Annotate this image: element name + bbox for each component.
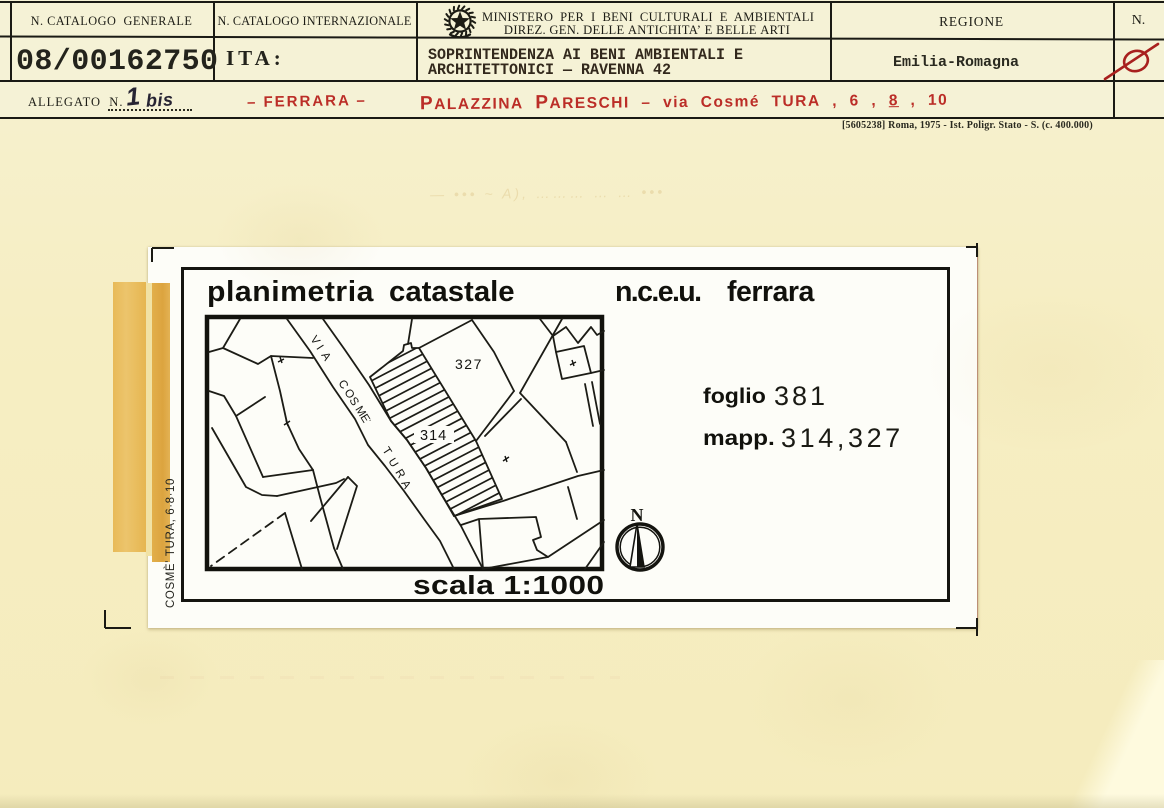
svg-text:ferrara: ferrara (727, 276, 815, 308)
svg-text:n.c.e.u.: n.c.e.u. (615, 276, 700, 308)
svg-text:catastale: catastale (389, 276, 515, 308)
svg-text:mapp.: mapp. (703, 426, 775, 450)
svg-text:planimetria: planimetria (207, 276, 374, 308)
svg-text:COSMÈʼ TURA, 6·8·10: COSMÈʼ TURA, 6·8·10 (164, 478, 177, 608)
svg-text:N: N (631, 505, 644, 525)
svg-text:381: 381 (774, 381, 828, 411)
svg-text:314: 314 (420, 428, 447, 444)
svg-text:scala 1:1000: scala 1:1000 (413, 572, 604, 601)
svg-text:327: 327 (455, 356, 483, 372)
svg-text:foglio: foglio (703, 384, 766, 408)
svg-text:314,327: 314,327 (781, 423, 904, 453)
